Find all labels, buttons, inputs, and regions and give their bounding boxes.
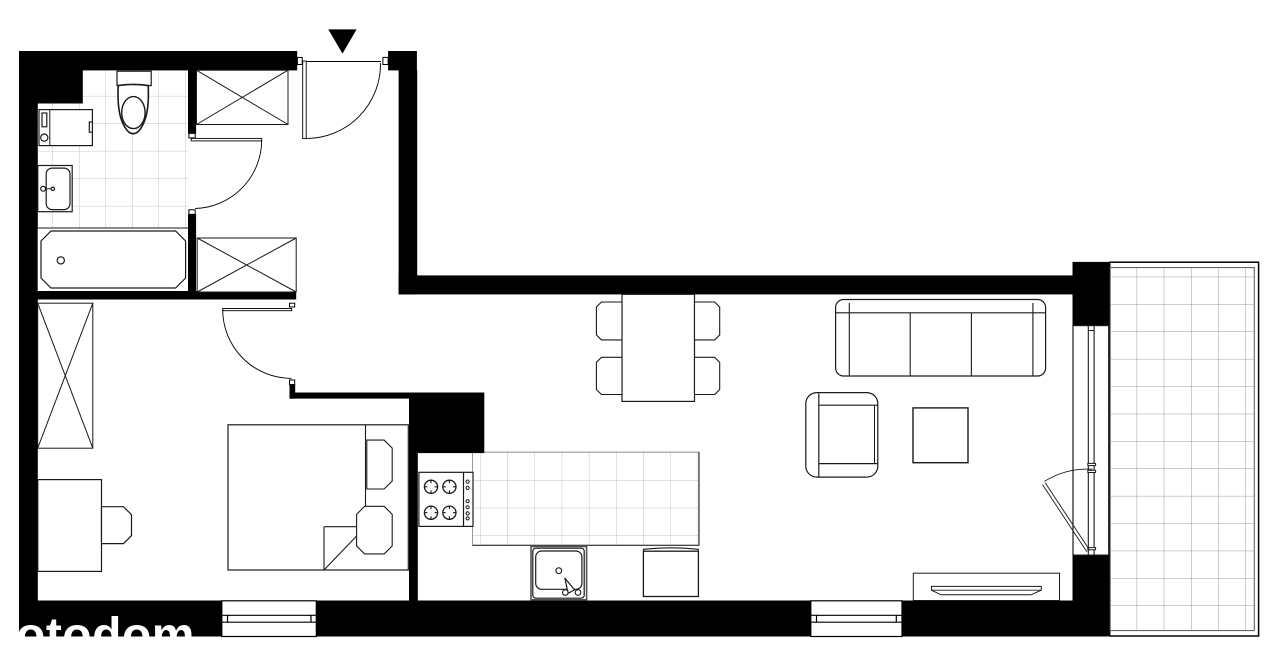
svg-text:otodom: otodom (16, 609, 195, 662)
